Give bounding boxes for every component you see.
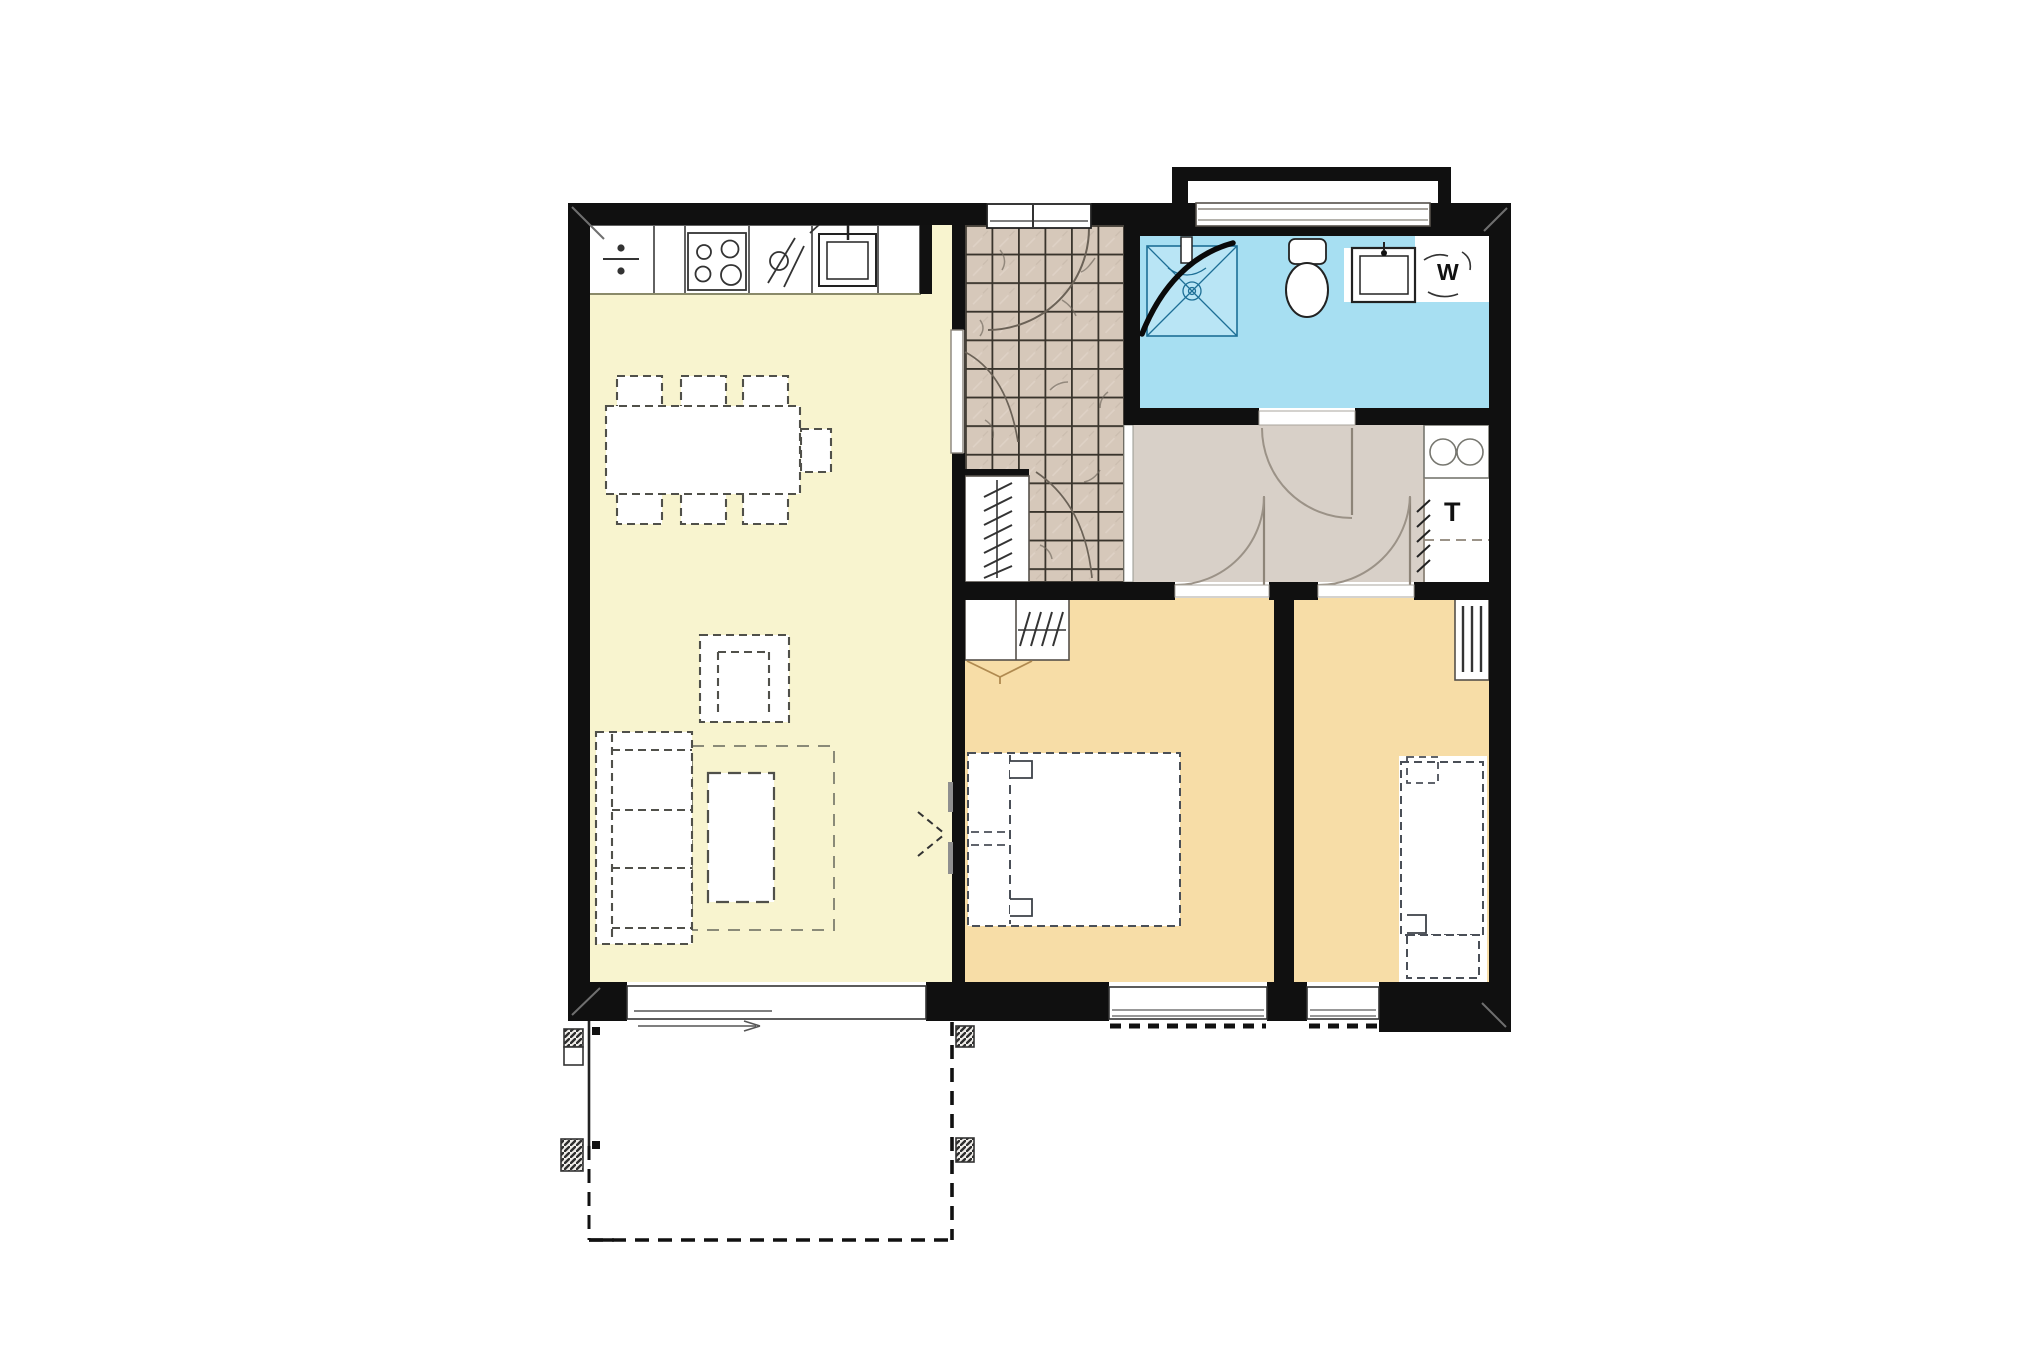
svg-text:W: W bbox=[1437, 259, 1459, 285]
svg-text:T: T bbox=[1444, 497, 1461, 527]
